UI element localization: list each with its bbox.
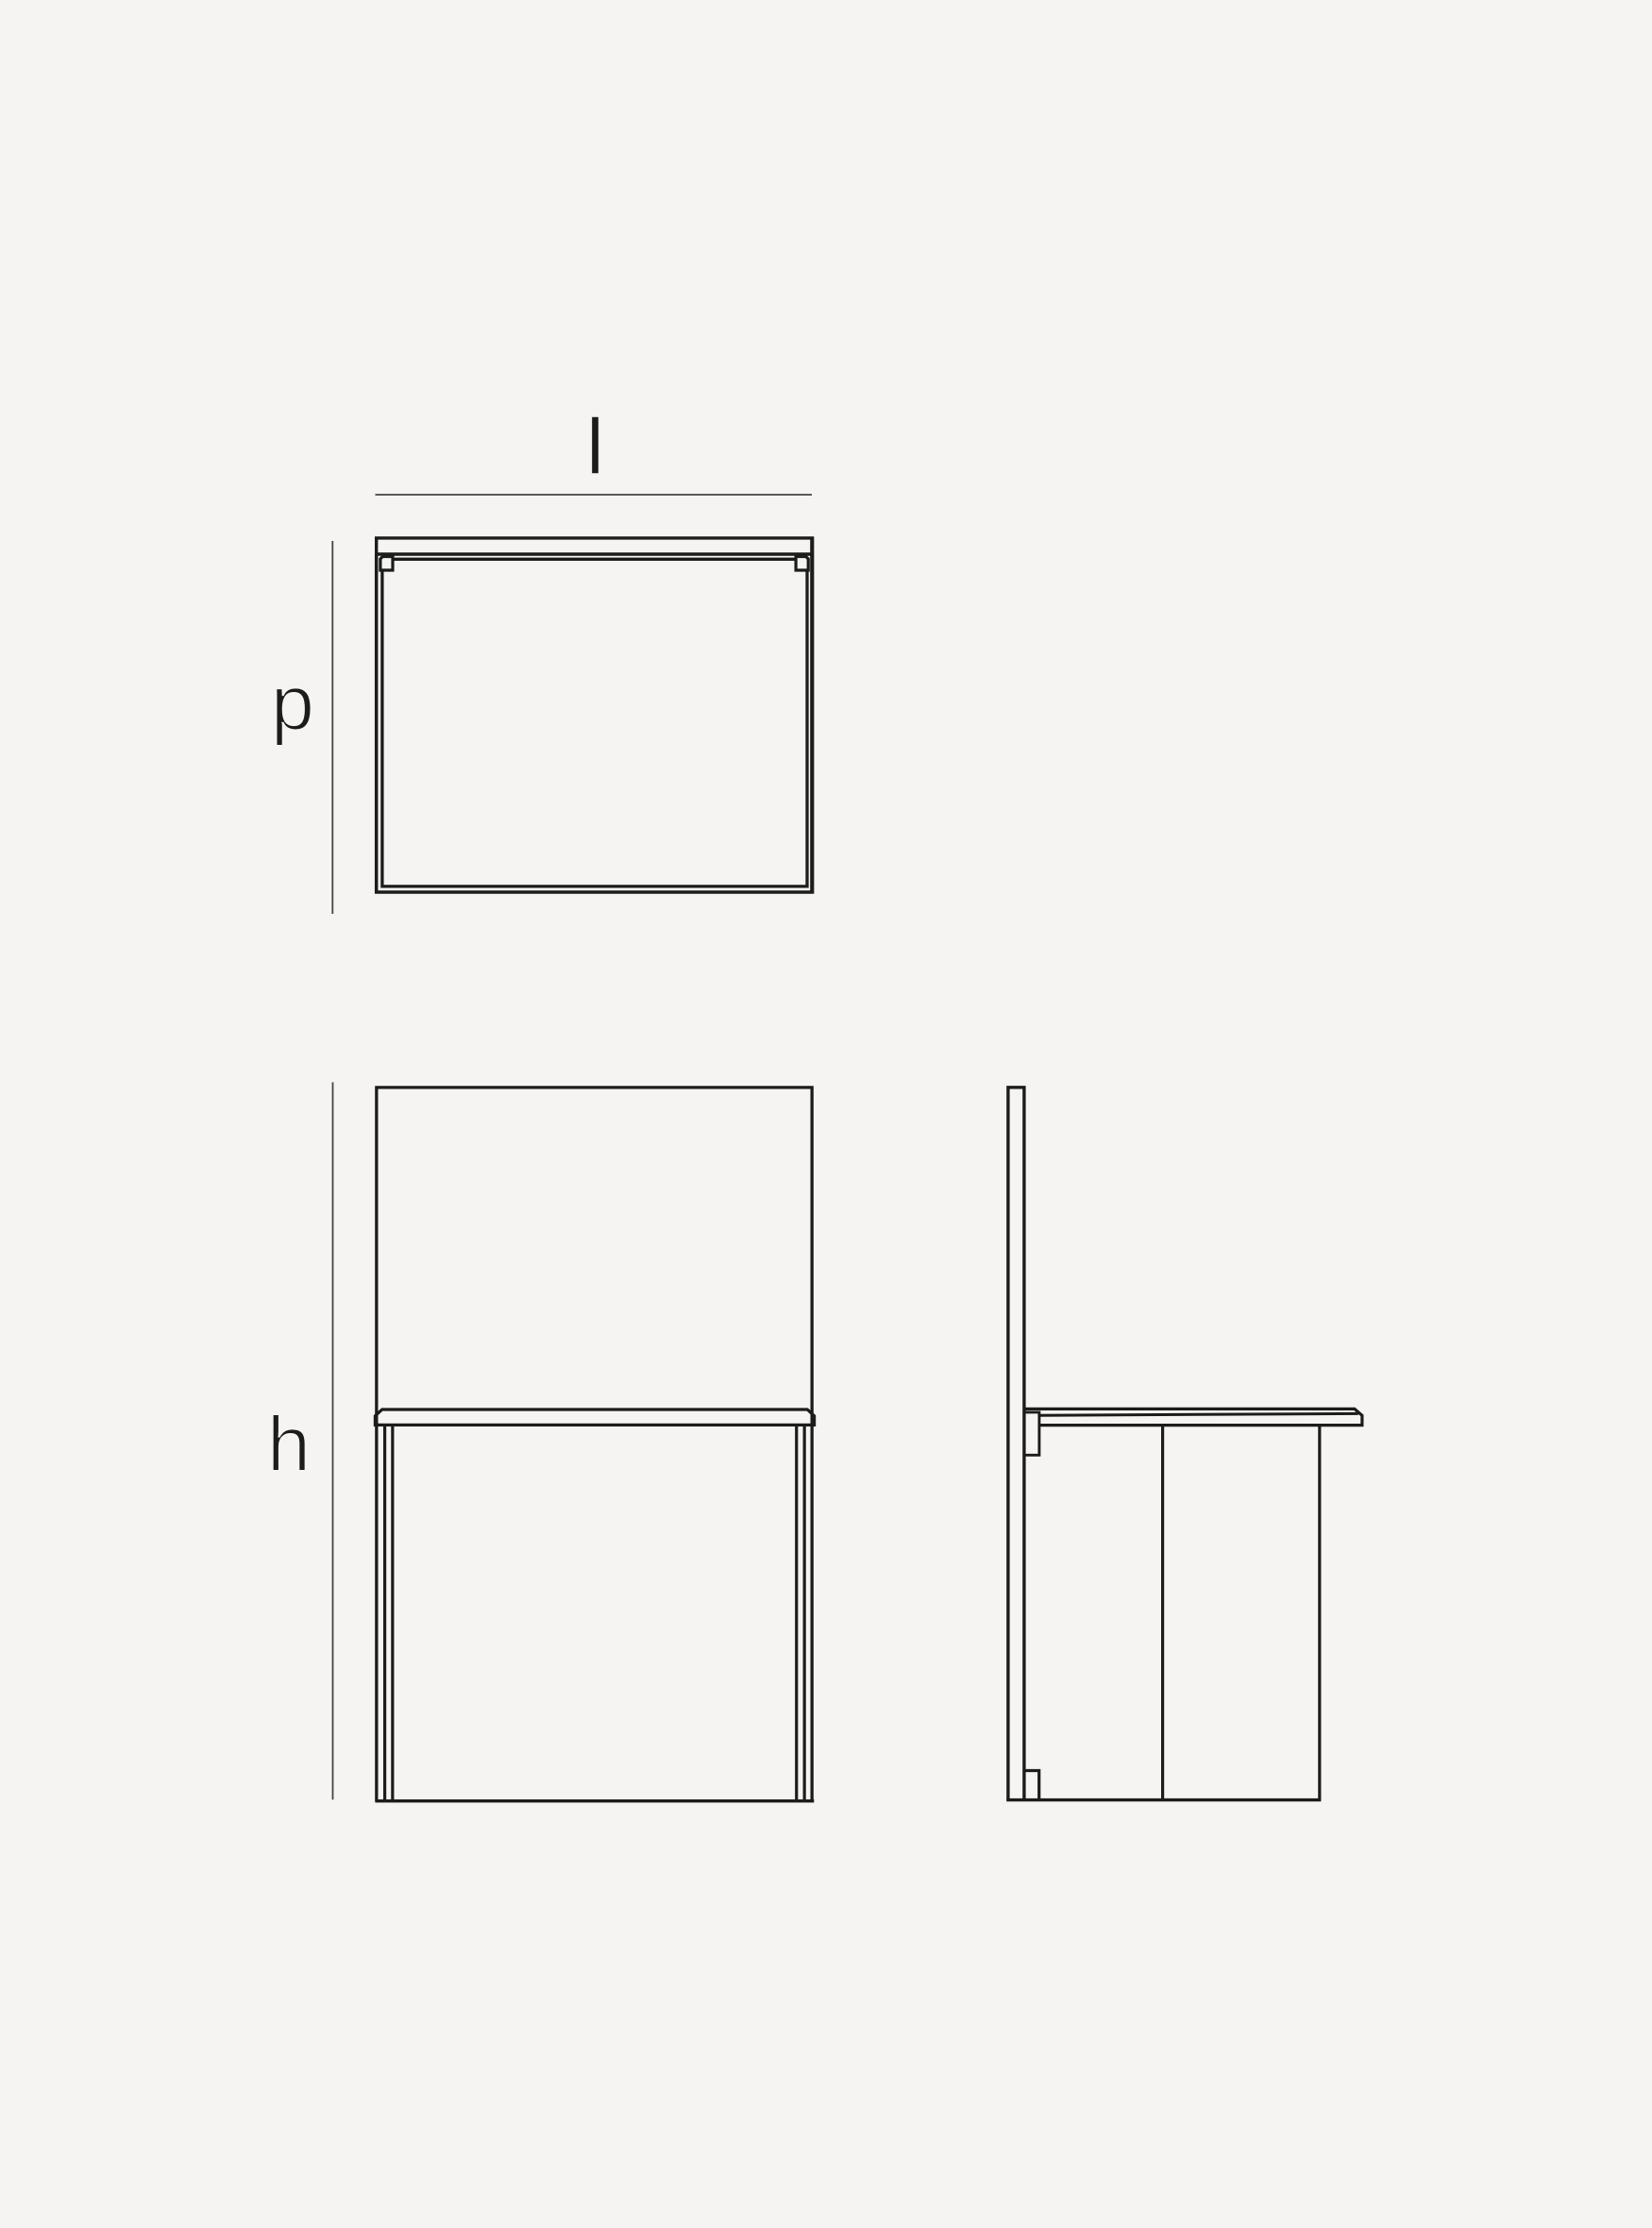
svg-text:h: h	[267, 1400, 311, 1488]
svg-text:l: l	[586, 403, 603, 491]
svg-text:p: p	[271, 659, 314, 747]
